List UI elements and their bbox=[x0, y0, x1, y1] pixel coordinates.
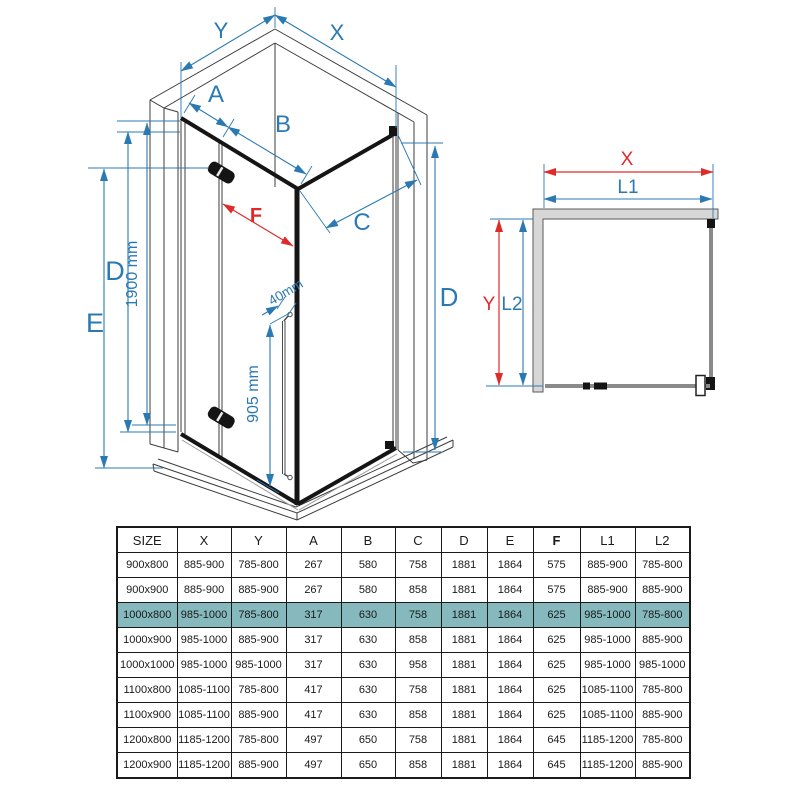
table-row-1100x800: 1100x8001085-1100785-8004176307581881186… bbox=[117, 678, 690, 703]
cell: 1085-1100 bbox=[177, 678, 231, 703]
col-header-l2: L2 bbox=[635, 527, 690, 553]
col-header-x: X bbox=[177, 527, 231, 553]
cell: 985-1000 bbox=[580, 603, 635, 628]
cell: 1185-1200 bbox=[177, 753, 231, 779]
cell: 785-800 bbox=[231, 728, 286, 753]
cell: 985-1000 bbox=[177, 628, 231, 653]
cell: 785-800 bbox=[635, 678, 690, 703]
col-header-y: Y bbox=[231, 527, 286, 553]
cell: 858 bbox=[395, 703, 441, 728]
cell: 1864 bbox=[487, 678, 533, 703]
cell: 1881 bbox=[441, 628, 487, 653]
table-row-900x900: 900x900885-900885-9002675808581881186457… bbox=[117, 578, 690, 603]
cell: 1881 bbox=[441, 678, 487, 703]
cell: 1881 bbox=[441, 578, 487, 603]
glass-clamp-bottom bbox=[385, 441, 394, 449]
cell: 900x900 bbox=[117, 578, 177, 603]
dim-label-b: B bbox=[275, 111, 291, 138]
cell: 1881 bbox=[441, 753, 487, 779]
bottom-rail-right bbox=[298, 448, 396, 504]
top-rail-right bbox=[298, 133, 396, 189]
cell: 1881 bbox=[441, 703, 487, 728]
cell: 1864 bbox=[487, 728, 533, 753]
cell: 630 bbox=[341, 628, 395, 653]
spec-table: SIZEXYABCDEFL1L2 900x800885-900785-80026… bbox=[116, 526, 691, 779]
col-header-c: C bbox=[395, 527, 441, 553]
table-row-1200x900: 1200x9001185-1200885-9004976508581881186… bbox=[117, 753, 690, 779]
col-header-l1: L1 bbox=[580, 527, 635, 553]
col-header-size: SIZE bbox=[117, 527, 177, 553]
cell: 900x800 bbox=[117, 553, 177, 578]
table-row-1000x1000: 1000x1000985-1000985-1000317630958188118… bbox=[117, 653, 690, 678]
cell: 885-900 bbox=[635, 703, 690, 728]
cell: 580 bbox=[341, 553, 395, 578]
cell: 650 bbox=[341, 728, 395, 753]
cell: 758 bbox=[395, 728, 441, 753]
cell: 497 bbox=[286, 753, 341, 779]
cell: 858 bbox=[395, 578, 441, 603]
product-spec-sheet: { "colors": { "dim_blue": "#2b79b3", "di… bbox=[0, 0, 800, 800]
cell: 758 bbox=[395, 603, 441, 628]
cell: 1100x800 bbox=[117, 678, 177, 703]
dim-label-905mm: 905 mm bbox=[245, 365, 262, 423]
cell: 785-800 bbox=[231, 603, 286, 628]
cell: 885-900 bbox=[177, 553, 231, 578]
clamp-top-view bbox=[707, 219, 715, 228]
cell: 885-900 bbox=[231, 578, 286, 603]
door-handle bbox=[283, 312, 293, 479]
cell: 985-1000 bbox=[231, 653, 286, 678]
cell: 580 bbox=[341, 578, 395, 603]
cell: 985-1000 bbox=[580, 653, 635, 678]
cell: 625 bbox=[533, 603, 580, 628]
hinge-mark-1 bbox=[583, 383, 590, 390]
table-row-1100x900: 1100x9001085-1100885-9004176308581881186… bbox=[117, 703, 690, 728]
cell: 645 bbox=[533, 753, 580, 779]
cell: 885-900 bbox=[231, 753, 286, 779]
hinge-mark-2 bbox=[594, 383, 607, 390]
dim-label-c: C bbox=[353, 209, 370, 236]
handle-top-view bbox=[696, 376, 705, 396]
cell: 1864 bbox=[487, 578, 533, 603]
cell: 1100x900 bbox=[117, 703, 177, 728]
cell: 985-1000 bbox=[635, 653, 690, 678]
dim-label-x: X bbox=[330, 20, 345, 45]
iso-dimensions-blue bbox=[88, 7, 443, 493]
cell: 575 bbox=[533, 578, 580, 603]
table-row-1000x800: 1000x800985-1000785-80031763075818811864… bbox=[117, 603, 690, 628]
cell: 858 bbox=[395, 753, 441, 779]
cell: 885-900 bbox=[580, 578, 635, 603]
cell: 625 bbox=[533, 653, 580, 678]
cell: 1881 bbox=[441, 653, 487, 678]
right-glass-side-panel bbox=[298, 126, 397, 510]
cell: 858 bbox=[395, 628, 441, 653]
top-plan-view: X L1 Y L2 bbox=[483, 149, 718, 396]
cell: 958 bbox=[395, 653, 441, 678]
cell: 1881 bbox=[441, 728, 487, 753]
table-row-1000x900: 1000x900985-1000885-90031763085818811864… bbox=[117, 628, 690, 653]
dim-label-40mm: 40mm bbox=[266, 276, 306, 308]
dim-label-f: F bbox=[250, 205, 262, 227]
cell: 1000x900 bbox=[117, 628, 177, 653]
cell: 885-900 bbox=[635, 578, 690, 603]
table-row-900x800: 900x800885-900785-8002675807581881186457… bbox=[117, 553, 690, 578]
door-hinge-top bbox=[206, 160, 237, 186]
shower-enclosure-isometric: Y X A B C D E D F 1900 mm 905 mm 40mm bbox=[86, 7, 458, 520]
cell: 575 bbox=[533, 553, 580, 578]
walls-top-view bbox=[533, 209, 718, 392]
back-walls bbox=[150, 29, 427, 463]
cell: 985-1000 bbox=[177, 653, 231, 678]
cell: 785-800 bbox=[231, 553, 286, 578]
cell: 317 bbox=[286, 653, 341, 678]
dim-label-y: Y bbox=[214, 18, 229, 43]
cell: 1185-1200 bbox=[177, 728, 231, 753]
cell: 1200x900 bbox=[117, 753, 177, 779]
cell: 630 bbox=[341, 603, 395, 628]
cell: 885-900 bbox=[177, 578, 231, 603]
cell: 785-800 bbox=[635, 728, 690, 753]
cell: 317 bbox=[286, 628, 341, 653]
col-header-d: D bbox=[441, 527, 487, 553]
plan-label-x: X bbox=[621, 149, 634, 170]
cell: 650 bbox=[341, 753, 395, 779]
cell: 417 bbox=[286, 703, 341, 728]
cell: 630 bbox=[341, 678, 395, 703]
cell: 630 bbox=[341, 703, 395, 728]
cell: 885-900 bbox=[635, 753, 690, 779]
cell: 885-900 bbox=[635, 628, 690, 653]
cell: 1185-1200 bbox=[580, 753, 635, 779]
cell: 497 bbox=[286, 728, 341, 753]
dim-label-e: E bbox=[86, 308, 104, 338]
cell: 1085-1100 bbox=[580, 678, 635, 703]
size-table-container: SIZEXYABCDEFL1L2 900x800885-900785-80026… bbox=[116, 526, 691, 779]
plan-label-y: Y bbox=[483, 294, 496, 315]
cell: 630 bbox=[341, 653, 395, 678]
cell: 1864 bbox=[487, 753, 533, 779]
dim-label-d-right: D bbox=[440, 282, 459, 312]
plan-label-l1: L1 bbox=[617, 177, 638, 198]
cell: 645 bbox=[533, 728, 580, 753]
cell: 758 bbox=[395, 678, 441, 703]
col-header-b: B bbox=[341, 527, 395, 553]
col-header-f: F bbox=[533, 527, 580, 553]
plan-label-l2: L2 bbox=[501, 294, 522, 315]
cell: 1864 bbox=[487, 603, 533, 628]
cell: 785-800 bbox=[231, 678, 286, 703]
cell: 785-800 bbox=[635, 553, 690, 578]
cell: 1200x800 bbox=[117, 728, 177, 753]
cell: 625 bbox=[533, 628, 580, 653]
cell: 1864 bbox=[487, 628, 533, 653]
table-header-row: SIZEXYABCDEFL1L2 bbox=[117, 527, 690, 553]
cell: 758 bbox=[395, 553, 441, 578]
dim-label-a: A bbox=[208, 81, 224, 108]
col-header-a: A bbox=[286, 527, 341, 553]
cell: 1864 bbox=[487, 703, 533, 728]
dim-label-1900mm: 1900 mm bbox=[124, 241, 141, 308]
cell: 985-1000 bbox=[177, 603, 231, 628]
corner-fitting-top-view bbox=[706, 377, 715, 390]
technical-diagram: Y X A B C D E D F 1900 mm 905 mm 40mm X … bbox=[0, 0, 800, 524]
left-glass-door-panel bbox=[181, 118, 298, 510]
dim-label-d-left: D bbox=[105, 256, 125, 286]
cell: 1881 bbox=[441, 553, 487, 578]
cell: 1085-1100 bbox=[177, 703, 231, 728]
cell: 785-800 bbox=[635, 603, 690, 628]
cell: 885-900 bbox=[231, 703, 286, 728]
cell: 1185-1200 bbox=[580, 728, 635, 753]
cell: 1881 bbox=[441, 603, 487, 628]
cell: 267 bbox=[286, 553, 341, 578]
cell: 1085-1100 bbox=[580, 703, 635, 728]
cell: 1864 bbox=[487, 653, 533, 678]
cell: 267 bbox=[286, 578, 341, 603]
table-row-1200x800: 1200x8001185-1200785-8004976507581881186… bbox=[117, 728, 690, 753]
cell: 1864 bbox=[487, 553, 533, 578]
cell: 317 bbox=[286, 603, 341, 628]
cell: 625 bbox=[533, 703, 580, 728]
cell: 625 bbox=[533, 678, 580, 703]
cell: 985-1000 bbox=[580, 628, 635, 653]
col-header-e: E bbox=[487, 527, 533, 553]
cell: 885-900 bbox=[231, 628, 286, 653]
cell: 417 bbox=[286, 678, 341, 703]
cell: 1000x1000 bbox=[117, 653, 177, 678]
cell: 885-900 bbox=[580, 553, 635, 578]
cell: 1000x800 bbox=[117, 603, 177, 628]
door-hinge-bottom bbox=[206, 405, 237, 431]
